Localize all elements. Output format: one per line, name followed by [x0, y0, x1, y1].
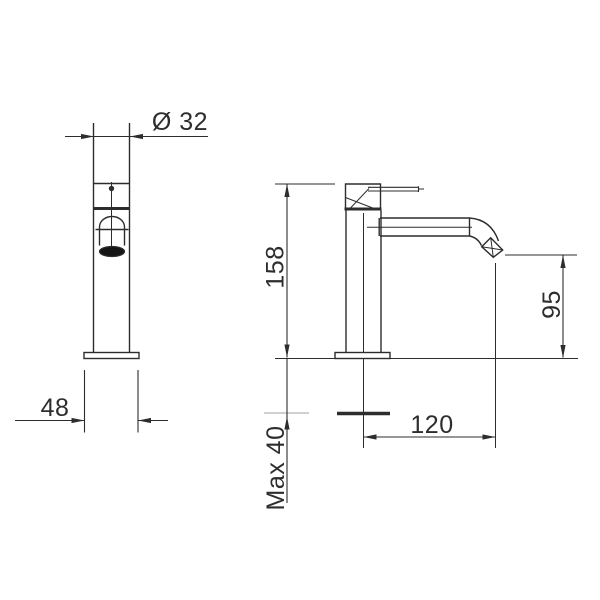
- total-height-label: 158: [262, 245, 290, 288]
- front-view: [84, 123, 139, 359]
- dimension-base-width: 48: [15, 370, 168, 433]
- dimension-max-mounting-thickness: Max 40: [262, 359, 309, 510]
- outlet-height-arrow-bottom: [560, 345, 565, 358]
- total-height-arrow-bottom: [284, 345, 289, 358]
- diameter-arrow-left: [81, 134, 94, 139]
- max-thickness-label: Max 40: [262, 426, 290, 511]
- lever-handle-rod: [368, 186, 424, 192]
- dimension-spout-diameter: Ø 32: [65, 108, 208, 139]
- outlet-height-label: 95: [538, 290, 566, 319]
- base-width-label: 48: [41, 394, 70, 422]
- base-width-arrow-left: [72, 418, 85, 423]
- spout-bend-inner: [470, 236, 482, 246]
- faucet-technical-drawing: Ø 32 48 158 9: [0, 0, 600, 600]
- spout-reach-label: 120: [410, 411, 453, 439]
- outlet-height-arrow-top: [560, 255, 565, 268]
- front-base-flange: [84, 353, 139, 359]
- dimension-outlet-height: 95: [505, 255, 577, 358]
- base-width-extension-lines: [85, 370, 139, 433]
- base-width-arrow-right: [138, 418, 151, 423]
- diameter-arrow-right: [130, 134, 143, 139]
- dimension-total-height: 158: [262, 184, 336, 358]
- side-base-flange: [335, 353, 390, 359]
- spout-reach-arrow-left: [364, 434, 377, 439]
- spout-reach-arrow-right: [483, 434, 496, 439]
- aerator-outlet: [100, 247, 125, 257]
- total-height-arrow-top: [284, 184, 289, 197]
- side-view: [275, 184, 578, 414]
- diameter-label: Ø 32: [152, 108, 208, 136]
- technical-drawing-page: Ø 32 48 158 9: [0, 0, 600, 600]
